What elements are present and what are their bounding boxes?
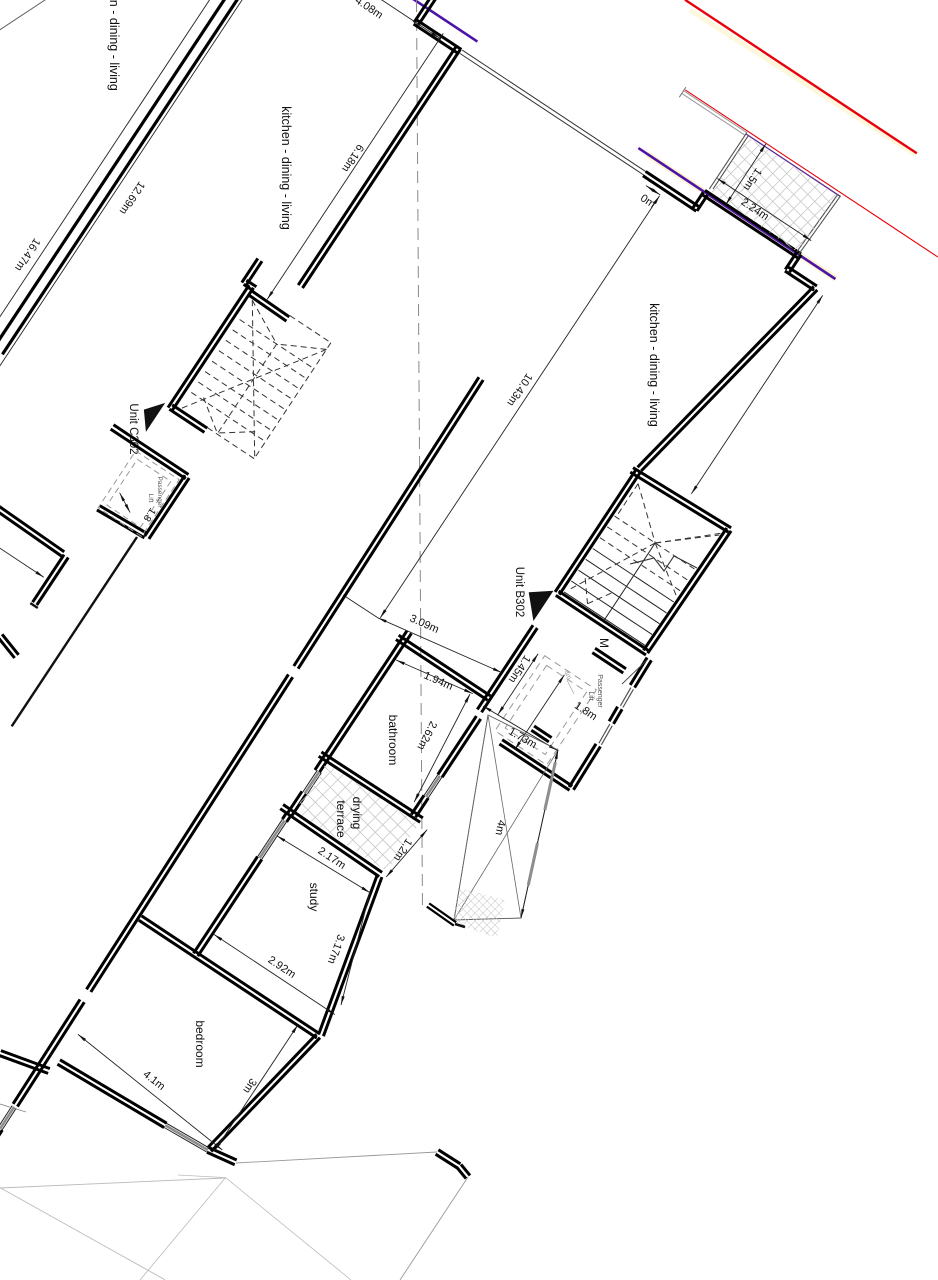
svg-text:Lift: Lift bbox=[587, 691, 594, 700]
svg-text:Passenger: Passenger bbox=[596, 674, 603, 708]
svg-text:drying: drying bbox=[350, 797, 364, 830]
svg-text:Lift: Lift bbox=[147, 494, 154, 503]
svg-text:kitchen - dining - living: kitchen - dining - living bbox=[647, 303, 661, 427]
svg-text:terrace: terrace bbox=[334, 800, 348, 838]
svg-text:Unit B302: Unit B302 bbox=[513, 567, 525, 618]
svg-text:study: study bbox=[307, 883, 321, 912]
svg-text:kitchen - dining - living: kitchen - dining - living bbox=[107, 0, 121, 91]
svg-text:bedroom: bedroom bbox=[193, 1020, 207, 1067]
svg-text:bathroom: bathroom bbox=[386, 715, 400, 766]
svg-text:kitchen - dining - living: kitchen - dining - living bbox=[279, 106, 293, 230]
svg-text:M: M bbox=[597, 638, 611, 648]
svg-text:Passenger: Passenger bbox=[156, 476, 163, 508]
